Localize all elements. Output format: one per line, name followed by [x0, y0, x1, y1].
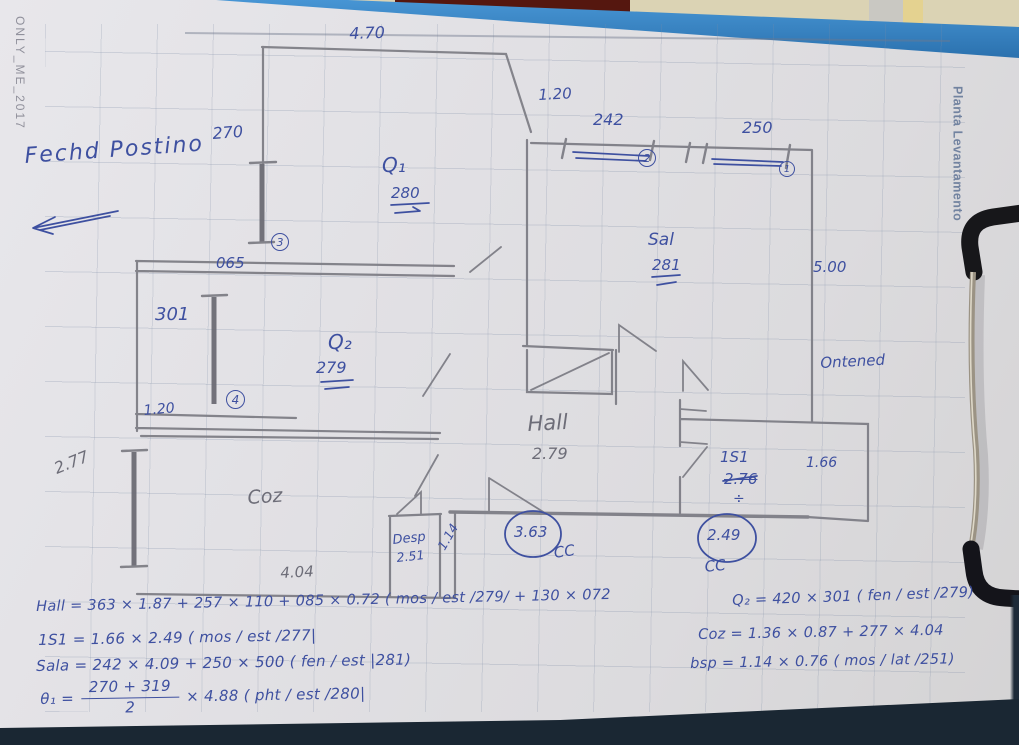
- dim-500: 5.00: [813, 260, 846, 275]
- dim-242: 242: [593, 112, 624, 128]
- dim-280: 280: [391, 186, 420, 201]
- dim-279: 279: [316, 360, 347, 376]
- value-363: 3.63: [514, 525, 547, 540]
- underline-281: [652, 275, 680, 285]
- stamp-planta-levantamento: Planta Levantamento: [951, 86, 964, 261]
- pencil-walls: [121, 47, 934, 716]
- window-mark-250: [712, 159, 783, 166]
- measure-ticks: [121, 139, 790, 567]
- ref-circle-3: 3: [271, 233, 289, 251]
- room-1s1: 1S1: [720, 450, 749, 465]
- underline-280: [391, 203, 429, 213]
- ref-circle-1: 1: [779, 161, 795, 177]
- cc-label-hall: CC: [553, 543, 576, 561]
- clip-upper-arm: [970, 213, 1019, 272]
- dim-120-left: 1.20: [143, 401, 175, 418]
- room-q1: Q₁: [382, 155, 406, 175]
- stamp-only-me: ONLY_ME_2017: [14, 16, 26, 151]
- dim-281: 281: [652, 258, 681, 273]
- value-249: 2.49: [707, 528, 740, 543]
- room-desp: Desp: [392, 531, 426, 547]
- formula-theta1: θ₁ = 270 + 319 2 × 4.88 ( pht / est /280…: [40, 675, 366, 717]
- theta-fraction: 270 + 319 2: [81, 679, 180, 717]
- room-hall: Hall: [527, 412, 568, 435]
- thick-wall-bars: [134, 164, 262, 566]
- dim-276: 2.76: [724, 472, 757, 487]
- clip-lower-arm: [971, 549, 1019, 599]
- door-swing-marks: [397, 247, 708, 514]
- dim-301: 301: [155, 306, 189, 324]
- ref-circle-4: 4: [226, 390, 245, 409]
- note-ontened: Ontened: [820, 353, 885, 371]
- theta-suffix: × 4.88 ( pht / est /280|: [186, 685, 366, 706]
- ref-circle-2: 2: [638, 149, 656, 167]
- room-sal: Sal: [648, 232, 674, 249]
- dim-404: 4.04: [280, 564, 314, 581]
- dim-065: 065: [216, 256, 245, 271]
- clipboard-clip: [970, 213, 1019, 599]
- ink-marks: [33, 152, 783, 562]
- dim-270: 270: [212, 124, 244, 142]
- photo-floor-plan-sketch-on-clipboard: ONLY_ME_2017 Planta Levantamento Fechd P…: [0, 0, 1019, 745]
- note-arrow: [33, 211, 118, 234]
- dim-250: 250: [742, 120, 773, 136]
- dim-251: 2.51: [396, 549, 425, 564]
- dim-166: 1.66: [806, 456, 837, 470]
- theta-denominator: 2: [125, 698, 135, 716]
- theta-numerator: 270 + 319: [81, 679, 179, 699]
- dim-470: 4.70: [349, 25, 385, 42]
- room-coz: Coz: [247, 487, 283, 508]
- underline-279: [321, 380, 353, 389]
- dim-279-hall: 2.79: [532, 446, 568, 462]
- room-q2: Q₂: [328, 332, 352, 352]
- theta-prefix: θ₁ =: [40, 690, 74, 709]
- dim-120-top: 1.20: [538, 86, 572, 103]
- cc-label-right: CC: [704, 558, 726, 575]
- divide-mark-276: ÷: [733, 492, 745, 506]
